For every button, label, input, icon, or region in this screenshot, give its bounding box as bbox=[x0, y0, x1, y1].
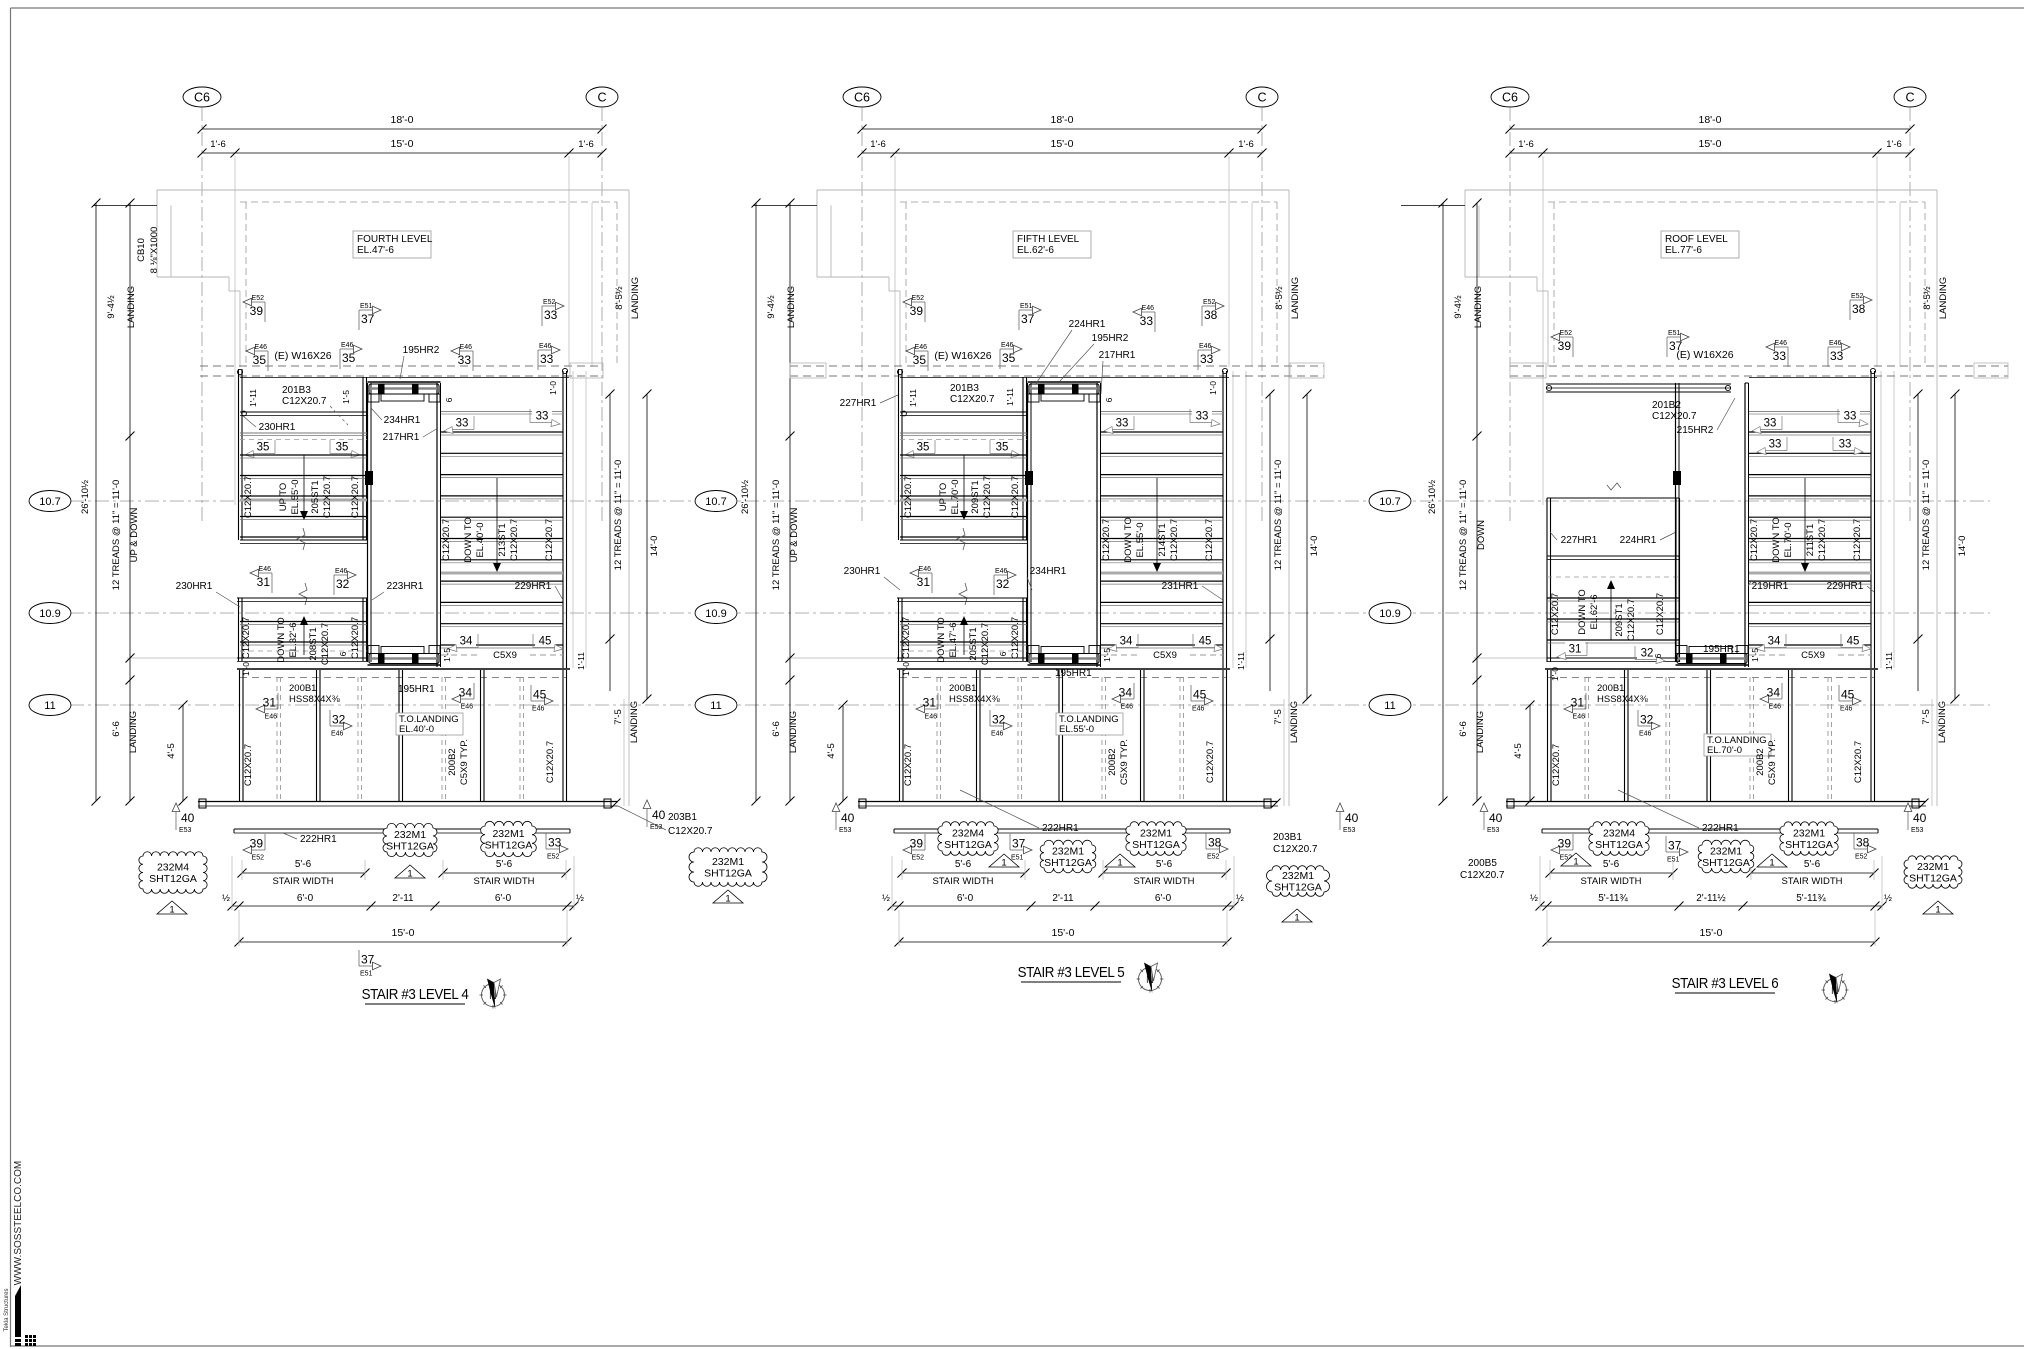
svg-text:C12X20.7: C12X20.7 bbox=[1626, 599, 1637, 641]
svg-text:7'-5: 7'-5 bbox=[1921, 709, 1932, 725]
svg-text:LANDING: LANDING bbox=[126, 286, 137, 328]
svg-text:11: 11 bbox=[44, 700, 55, 712]
svg-text:12 TREADS @ 11" = 11'-0: 12 TREADS @ 11" = 11'-0 bbox=[111, 480, 122, 591]
svg-text:12 TREADS @ 11" = 11'-0: 12 TREADS @ 11" = 11'-0 bbox=[771, 480, 782, 591]
svg-text:E52: E52 bbox=[252, 855, 265, 862]
svg-text:14'-0: 14'-0 bbox=[1957, 536, 1968, 557]
svg-text:DOWN TO: DOWN TO bbox=[1577, 589, 1588, 635]
svg-text:26'-10½: 26'-10½ bbox=[740, 480, 751, 514]
svg-text:6'-6: 6'-6 bbox=[771, 721, 782, 737]
svg-text:E46: E46 bbox=[1142, 305, 1155, 312]
svg-text:E52: E52 bbox=[912, 855, 925, 862]
svg-text:EL.40'-0: EL.40'-0 bbox=[399, 724, 434, 735]
svg-text:6: 6 bbox=[1104, 397, 1114, 402]
svg-text:1'-6: 1'-6 bbox=[1886, 139, 1902, 150]
svg-text:34: 34 bbox=[1768, 636, 1781, 648]
svg-text:34: 34 bbox=[459, 686, 473, 700]
svg-text:SHT12GA: SHT12GA bbox=[149, 873, 197, 885]
svg-text:DOWN TO: DOWN TO bbox=[1771, 517, 1782, 563]
svg-text:203B1: 203B1 bbox=[1273, 832, 1302, 843]
svg-text:E46: E46 bbox=[1199, 343, 1212, 350]
svg-text:DOWN TO: DOWN TO bbox=[936, 617, 947, 663]
svg-text:205ST1: 205ST1 bbox=[968, 627, 979, 660]
svg-text:E46: E46 bbox=[1829, 340, 1842, 347]
svg-text:SHT12GA: SHT12GA bbox=[1909, 872, 1957, 884]
svg-text:232M4: 232M4 bbox=[952, 827, 984, 839]
svg-text:C: C bbox=[1257, 91, 1266, 105]
svg-text:E51: E51 bbox=[360, 303, 373, 310]
svg-text:1'-11: 1'-11 bbox=[1005, 388, 1015, 406]
svg-text:E51: E51 bbox=[1020, 303, 1033, 310]
svg-text:E46: E46 bbox=[1001, 342, 1014, 349]
svg-text:SHT12GA: SHT12GA bbox=[386, 840, 434, 852]
svg-text:33: 33 bbox=[548, 836, 562, 850]
svg-text:33: 33 bbox=[540, 352, 554, 366]
svg-text:C12X20.7: C12X20.7 bbox=[544, 519, 555, 561]
svg-text:E46: E46 bbox=[1840, 706, 1853, 713]
svg-text:35: 35 bbox=[917, 442, 930, 454]
svg-text:C12X20.7: C12X20.7 bbox=[980, 623, 991, 665]
svg-text:33: 33 bbox=[458, 353, 472, 367]
svg-text:C12X20.7: C12X20.7 bbox=[982, 476, 993, 518]
svg-text:SHT12GA: SHT12GA bbox=[704, 867, 752, 879]
svg-text:232M4: 232M4 bbox=[1603, 827, 1635, 839]
svg-text:C6: C6 bbox=[194, 91, 210, 105]
svg-text:33: 33 bbox=[536, 411, 549, 423]
svg-text:C12X20.7: C12X20.7 bbox=[1169, 519, 1180, 561]
svg-text:C12X20.7: C12X20.7 bbox=[1817, 519, 1828, 561]
svg-text:213ST1: 213ST1 bbox=[497, 523, 508, 556]
svg-text:UP TO: UP TO bbox=[278, 483, 289, 512]
svg-text:E52: E52 bbox=[1560, 330, 1573, 337]
svg-text:38: 38 bbox=[1204, 308, 1218, 322]
svg-text:UP & DOWN: UP & DOWN bbox=[789, 508, 800, 563]
svg-text:222HR1: 222HR1 bbox=[300, 834, 337, 845]
svg-text:6'-0: 6'-0 bbox=[495, 893, 512, 904]
svg-text:232M1: 232M1 bbox=[1140, 827, 1172, 839]
svg-text:DOWN TO: DOWN TO bbox=[1123, 517, 1134, 563]
svg-text:E46: E46 bbox=[539, 343, 552, 350]
svg-text:1: 1 bbox=[169, 905, 174, 916]
svg-text:201B2: 201B2 bbox=[1652, 400, 1681, 411]
svg-text:C12X20.7: C12X20.7 bbox=[668, 826, 713, 837]
svg-text:C12X20.7: C12X20.7 bbox=[322, 476, 333, 518]
svg-text:33: 33 bbox=[456, 418, 469, 430]
svg-text:32: 32 bbox=[332, 713, 346, 727]
svg-text:E46: E46 bbox=[532, 706, 545, 713]
svg-text:5'-6: 5'-6 bbox=[1156, 859, 1173, 870]
svg-text:1'-6: 1'-6 bbox=[870, 139, 886, 150]
svg-text:C12X20.7: C12X20.7 bbox=[1853, 741, 1864, 783]
svg-text:C12X20.7: C12X20.7 bbox=[282, 396, 327, 407]
svg-text:31: 31 bbox=[263, 696, 277, 710]
svg-text:45: 45 bbox=[1847, 636, 1860, 648]
svg-text:E52: E52 bbox=[912, 295, 925, 302]
svg-text:35: 35 bbox=[257, 442, 270, 454]
svg-text:37: 37 bbox=[1012, 837, 1026, 851]
svg-text:EL.62'-6: EL.62'-6 bbox=[1017, 245, 1054, 256]
svg-text:E46: E46 bbox=[991, 731, 1004, 738]
svg-text:LANDING: LANDING bbox=[1937, 701, 1948, 743]
svg-text:200B2: 200B2 bbox=[447, 748, 458, 775]
svg-text:EL.62'-6: EL.62'-6 bbox=[1589, 594, 1600, 629]
svg-text:C: C bbox=[1905, 91, 1914, 105]
svg-text:195HR1: 195HR1 bbox=[1055, 668, 1092, 679]
svg-text:38: 38 bbox=[1208, 836, 1222, 850]
svg-text:UP & DOWN: UP & DOWN bbox=[129, 508, 140, 563]
svg-text:10.9: 10.9 bbox=[1379, 608, 1400, 620]
svg-text:UP TO: UP TO bbox=[938, 483, 949, 512]
svg-text:E46: E46 bbox=[1775, 340, 1788, 347]
svg-text:26'-10½: 26'-10½ bbox=[1427, 480, 1438, 514]
svg-text:209ST1: 209ST1 bbox=[970, 480, 981, 513]
svg-text:18'-0: 18'-0 bbox=[390, 114, 413, 126]
svg-text:40: 40 bbox=[841, 811, 855, 825]
svg-text:229HR1: 229HR1 bbox=[515, 581, 552, 592]
svg-text:6: 6 bbox=[444, 397, 454, 402]
svg-text:4'-5: 4'-5 bbox=[826, 743, 837, 759]
svg-text:33: 33 bbox=[1764, 418, 1777, 430]
svg-text:45: 45 bbox=[533, 688, 547, 702]
svg-text:11: 11 bbox=[1384, 700, 1395, 712]
svg-text:C5X9 TYP.: C5X9 TYP. bbox=[1767, 739, 1778, 785]
svg-text:EL.32'-6: EL.32'-6 bbox=[288, 622, 299, 657]
svg-text:C5X9 TYP.: C5X9 TYP. bbox=[459, 739, 470, 785]
svg-text:18'-0: 18'-0 bbox=[1698, 114, 1721, 126]
svg-text:211ST1: 211ST1 bbox=[1805, 524, 1816, 557]
svg-text:6: 6 bbox=[1653, 653, 1663, 658]
svg-text:STAIR WIDTH: STAIR WIDTH bbox=[932, 876, 993, 887]
svg-text:9'-4½: 9'-4½ bbox=[106, 295, 117, 319]
svg-text:LANDING: LANDING bbox=[788, 711, 799, 753]
svg-text:SHT12GA: SHT12GA bbox=[1702, 857, 1750, 869]
svg-text:18'-0: 18'-0 bbox=[1050, 114, 1073, 126]
svg-text:6: 6 bbox=[998, 651, 1008, 656]
svg-text:232M1: 232M1 bbox=[1710, 845, 1742, 857]
svg-text:1: 1 bbox=[1117, 858, 1122, 869]
svg-text:LANDING: LANDING bbox=[630, 277, 641, 319]
svg-text:34: 34 bbox=[1120, 636, 1133, 648]
svg-text:37: 37 bbox=[361, 312, 375, 326]
svg-text:FOURTH LEVEL: FOURTH LEVEL bbox=[357, 234, 433, 245]
svg-text:E51: E51 bbox=[1011, 855, 1024, 862]
svg-text:E46: E46 bbox=[1769, 704, 1782, 711]
svg-text:C6: C6 bbox=[854, 91, 870, 105]
svg-text:C12X20.7: C12X20.7 bbox=[1010, 476, 1021, 518]
svg-text:217HR1: 217HR1 bbox=[1099, 350, 1136, 361]
svg-text:5'-6: 5'-6 bbox=[1804, 859, 1821, 870]
svg-text:1'-11: 1'-11 bbox=[248, 389, 258, 407]
svg-text:EL.47'-6: EL.47'-6 bbox=[357, 245, 394, 256]
svg-text:33: 33 bbox=[1839, 439, 1852, 451]
svg-text:39: 39 bbox=[910, 837, 924, 851]
svg-text:EL.47'-6: EL.47'-6 bbox=[948, 622, 959, 657]
svg-text:C12X20.7: C12X20.7 bbox=[1655, 593, 1666, 635]
svg-text:32: 32 bbox=[336, 577, 350, 591]
svg-text:SHT12GA: SHT12GA bbox=[1132, 839, 1180, 851]
svg-text:LANDING: LANDING bbox=[1475, 711, 1486, 753]
svg-text:14'-0: 14'-0 bbox=[649, 536, 660, 557]
svg-text:E46: E46 bbox=[1121, 704, 1134, 711]
svg-text:1'-11: 1'-11 bbox=[1236, 652, 1246, 670]
svg-text:232M4: 232M4 bbox=[157, 861, 189, 873]
svg-text:1: 1 bbox=[1001, 858, 1006, 869]
svg-text:C12X20.7: C12X20.7 bbox=[350, 476, 361, 518]
svg-text:1: 1 bbox=[407, 869, 412, 880]
svg-text:33: 33 bbox=[1116, 418, 1129, 430]
svg-text:C12X20.7: C12X20.7 bbox=[243, 744, 254, 786]
svg-text:200B1: 200B1 bbox=[949, 683, 976, 694]
svg-text:C5X9: C5X9 bbox=[1801, 650, 1825, 661]
svg-text:40: 40 bbox=[652, 808, 666, 822]
svg-text:LANDING: LANDING bbox=[1290, 277, 1301, 319]
svg-text:2'-11½: 2'-11½ bbox=[1696, 893, 1726, 904]
svg-text:HSS8X4X⅜: HSS8X4X⅜ bbox=[1597, 694, 1648, 705]
svg-text:8 ⅛"X1000: 8 ⅛"X1000 bbox=[149, 227, 160, 274]
svg-text:E46: E46 bbox=[1573, 714, 1586, 721]
svg-text:C12X20.7: C12X20.7 bbox=[241, 617, 252, 659]
svg-text:C12X20.7: C12X20.7 bbox=[903, 476, 914, 518]
svg-text:26'-10½: 26'-10½ bbox=[80, 480, 91, 514]
svg-text:10.7: 10.7 bbox=[705, 496, 726, 508]
svg-text:ROOF LEVEL: ROOF LEVEL bbox=[1665, 234, 1728, 245]
svg-text:LANDING: LANDING bbox=[1938, 277, 1949, 319]
svg-text:15'-0: 15'-0 bbox=[391, 927, 414, 939]
svg-text:232M1: 232M1 bbox=[394, 829, 426, 841]
svg-text:232M1: 232M1 bbox=[1052, 845, 1084, 857]
svg-text:39: 39 bbox=[1558, 837, 1572, 851]
svg-text:39: 39 bbox=[1558, 339, 1572, 353]
svg-text:33: 33 bbox=[1200, 352, 1214, 366]
svg-text:215HR2: 215HR2 bbox=[1677, 425, 1714, 436]
svg-text:37: 37 bbox=[1668, 839, 1682, 853]
svg-text:1'-6: 1'-6 bbox=[1518, 139, 1534, 150]
svg-text:222HR1: 222HR1 bbox=[1702, 823, 1739, 834]
svg-text:39: 39 bbox=[910, 304, 924, 318]
svg-text:201B3: 201B3 bbox=[282, 385, 311, 396]
svg-text:E51: E51 bbox=[1668, 330, 1681, 337]
svg-text:C6: C6 bbox=[1502, 91, 1518, 105]
svg-text:223HR1: 223HR1 bbox=[387, 581, 424, 592]
svg-text:5'-6: 5'-6 bbox=[295, 859, 312, 870]
svg-text:(E) W16X26: (E) W16X26 bbox=[274, 350, 331, 362]
svg-text:½: ½ bbox=[1884, 893, 1892, 904]
svg-text:STAIR WIDTH: STAIR WIDTH bbox=[272, 876, 333, 887]
svg-text:(E) W16X26: (E) W16X26 bbox=[1676, 349, 1733, 361]
svg-text:C12X20.7: C12X20.7 bbox=[901, 617, 912, 659]
svg-text:15'-0: 15'-0 bbox=[390, 138, 413, 150]
svg-text:E46: E46 bbox=[460, 344, 473, 351]
svg-text:45: 45 bbox=[539, 636, 552, 648]
svg-text:1'-11: 1'-11 bbox=[576, 652, 586, 670]
svg-text:WWW.SOSSTEELCO.COM: WWW.SOSSTEELCO.COM bbox=[13, 1161, 24, 1285]
svg-text:8'-5½: 8'-5½ bbox=[614, 286, 625, 310]
svg-text:4'-5: 4'-5 bbox=[1513, 743, 1524, 759]
svg-text:1'-5: 1'-5 bbox=[1750, 648, 1760, 662]
svg-text:35: 35 bbox=[342, 351, 356, 365]
svg-text:STAIR WIDTH: STAIR WIDTH bbox=[1781, 876, 1842, 887]
svg-text:1'-5: 1'-5 bbox=[1102, 648, 1112, 662]
svg-text:E46: E46 bbox=[335, 568, 348, 575]
svg-text:34: 34 bbox=[1119, 686, 1133, 700]
svg-text:40: 40 bbox=[181, 811, 195, 825]
svg-text:6'-6: 6'-6 bbox=[111, 721, 122, 737]
svg-text:217HR1: 217HR1 bbox=[383, 432, 420, 443]
svg-text:9'-4½: 9'-4½ bbox=[766, 295, 777, 319]
svg-text:195HR2: 195HR2 bbox=[1092, 333, 1129, 344]
svg-text:12 TREADS @ 11" = 11'-0: 12 TREADS @ 11" = 11'-0 bbox=[1273, 460, 1284, 571]
svg-text:E53: E53 bbox=[1487, 827, 1500, 834]
svg-text:EL.70'-0: EL.70'-0 bbox=[1707, 745, 1742, 756]
svg-text:232M1: 232M1 bbox=[492, 828, 524, 840]
svg-text:EL.40'-0: EL.40'-0 bbox=[475, 522, 486, 557]
svg-text:C12X20.7: C12X20.7 bbox=[1205, 741, 1216, 783]
svg-text:E51: E51 bbox=[1667, 857, 1680, 864]
svg-text:200B1: 200B1 bbox=[1597, 683, 1624, 694]
svg-text:4'-5: 4'-5 bbox=[166, 743, 177, 759]
svg-text:195HR1: 195HR1 bbox=[1703, 644, 1740, 655]
svg-text:35: 35 bbox=[1002, 351, 1016, 365]
svg-text:HSS8X4X⅜: HSS8X4X⅜ bbox=[949, 694, 1000, 705]
svg-text:32: 32 bbox=[996, 577, 1010, 591]
svg-text:224HR1: 224HR1 bbox=[1069, 319, 1106, 330]
svg-text:40: 40 bbox=[1913, 811, 1927, 825]
svg-text:C12X20.7: C12X20.7 bbox=[1551, 744, 1562, 786]
svg-text:E52: E52 bbox=[252, 295, 265, 302]
svg-text:6'-0: 6'-0 bbox=[1155, 893, 1172, 904]
svg-text:6: 6 bbox=[338, 651, 348, 656]
svg-text:C12X20.7: C12X20.7 bbox=[441, 519, 452, 561]
svg-text:14'-0: 14'-0 bbox=[1309, 536, 1320, 557]
svg-text:200B1: 200B1 bbox=[289, 683, 316, 694]
svg-text:231HR1: 231HR1 bbox=[1162, 581, 1199, 592]
svg-text:C12X20.7: C12X20.7 bbox=[320, 623, 331, 665]
svg-text:1'-6: 1'-6 bbox=[210, 139, 226, 150]
svg-text:31: 31 bbox=[1569, 644, 1582, 656]
svg-text:5'-6: 5'-6 bbox=[496, 859, 513, 870]
svg-text:34: 34 bbox=[460, 636, 473, 648]
svg-text:5'-6: 5'-6 bbox=[955, 859, 972, 870]
svg-text:40: 40 bbox=[1489, 811, 1503, 825]
svg-text:10.9: 10.9 bbox=[39, 608, 60, 620]
svg-text:234HR1: 234HR1 bbox=[1030, 566, 1067, 577]
svg-text:LANDING: LANDING bbox=[629, 701, 640, 743]
svg-text:EL.70'-0: EL.70'-0 bbox=[950, 479, 961, 514]
svg-text:33: 33 bbox=[1769, 439, 1782, 451]
svg-text:219HR1: 219HR1 bbox=[1752, 581, 1789, 592]
svg-text:33: 33 bbox=[1844, 411, 1857, 423]
svg-text:5'-11¾: 5'-11¾ bbox=[1598, 893, 1628, 904]
svg-text:8'-5½: 8'-5½ bbox=[1922, 286, 1933, 310]
svg-text:31: 31 bbox=[923, 696, 937, 710]
svg-text:232M1: 232M1 bbox=[1282, 870, 1314, 882]
svg-text:39: 39 bbox=[250, 304, 264, 318]
svg-text:C12X20.7: C12X20.7 bbox=[1101, 519, 1112, 561]
svg-text:EL.55'-0: EL.55'-0 bbox=[290, 479, 301, 514]
svg-text:201B3: 201B3 bbox=[950, 383, 979, 394]
svg-text:232M1: 232M1 bbox=[1793, 827, 1825, 839]
svg-text:232M1: 232M1 bbox=[712, 856, 744, 868]
svg-text:33: 33 bbox=[544, 308, 558, 322]
svg-text:32: 32 bbox=[992, 713, 1006, 727]
svg-text:EL.70'-0: EL.70'-0 bbox=[1783, 522, 1794, 557]
svg-text:12 TREADS @ 11" = 11'-0: 12 TREADS @ 11" = 11'-0 bbox=[613, 460, 624, 571]
svg-text:½: ½ bbox=[222, 893, 230, 904]
svg-text:12 TREADS @ 11" = 11'-0: 12 TREADS @ 11" = 11'-0 bbox=[1921, 460, 1932, 571]
svg-text:45: 45 bbox=[1841, 688, 1855, 702]
svg-text:SHT12GA: SHT12GA bbox=[944, 839, 992, 851]
svg-text:½: ½ bbox=[576, 893, 584, 904]
svg-text:½: ½ bbox=[1236, 893, 1244, 904]
svg-text:37: 37 bbox=[361, 953, 375, 967]
svg-text:8'-5½: 8'-5½ bbox=[1274, 286, 1285, 310]
svg-text:7'-5: 7'-5 bbox=[1273, 709, 1284, 725]
svg-text:40: 40 bbox=[1345, 811, 1359, 825]
svg-text:SHT12GA: SHT12GA bbox=[1785, 839, 1833, 851]
svg-text:E51: E51 bbox=[360, 971, 373, 978]
svg-text:209ST1: 209ST1 bbox=[1614, 603, 1625, 636]
svg-text:E52: E52 bbox=[1851, 293, 1864, 300]
svg-text:205ST1: 205ST1 bbox=[310, 480, 321, 513]
svg-text:227HR1: 227HR1 bbox=[840, 398, 877, 409]
svg-text:E52: E52 bbox=[1203, 299, 1216, 306]
svg-text:STAIR #3 LEVEL 4: STAIR #3 LEVEL 4 bbox=[362, 985, 469, 1002]
svg-text:C: C bbox=[597, 91, 606, 105]
svg-text:33: 33 bbox=[1196, 411, 1209, 423]
svg-text:214ST1: 214ST1 bbox=[1157, 523, 1168, 556]
svg-text:1'-5: 1'-5 bbox=[442, 648, 452, 662]
svg-text:E53: E53 bbox=[1911, 827, 1924, 834]
svg-text:C12X20.7: C12X20.7 bbox=[1852, 519, 1863, 561]
svg-text:6'-0: 6'-0 bbox=[297, 893, 314, 904]
svg-text:LANDING: LANDING bbox=[1289, 701, 1300, 743]
svg-text:15'-0: 15'-0 bbox=[1699, 927, 1722, 939]
svg-text:C12X20.7: C12X20.7 bbox=[1273, 844, 1318, 855]
svg-text:224HR1: 224HR1 bbox=[1620, 535, 1657, 546]
svg-text:C5X9: C5X9 bbox=[493, 650, 517, 661]
svg-text:1: 1 bbox=[1573, 857, 1578, 868]
svg-text:32: 32 bbox=[1640, 713, 1654, 727]
svg-text:SHT12GA: SHT12GA bbox=[1274, 881, 1322, 893]
svg-text:195HR1: 195HR1 bbox=[398, 684, 435, 695]
svg-text:DOWN: DOWN bbox=[1476, 520, 1487, 550]
svg-text:STAIR #3 LEVEL 5: STAIR #3 LEVEL 5 bbox=[1018, 963, 1125, 980]
svg-text:E46: E46 bbox=[331, 731, 344, 738]
svg-text:232M1: 232M1 bbox=[1917, 861, 1949, 873]
svg-text:222HR1: 222HR1 bbox=[1042, 823, 1079, 834]
svg-text:1'-6: 1'-6 bbox=[1238, 139, 1254, 150]
svg-text:6'-6: 6'-6 bbox=[1458, 721, 1469, 737]
svg-text:E46: E46 bbox=[995, 568, 1008, 575]
svg-text:33: 33 bbox=[1830, 349, 1844, 363]
svg-text:E46: E46 bbox=[1639, 731, 1652, 738]
svg-text:C12X20.7: C12X20.7 bbox=[1460, 870, 1505, 881]
svg-text:E46: E46 bbox=[265, 714, 278, 721]
svg-text:E52: E52 bbox=[1207, 854, 1220, 861]
svg-text:STAIR WIDTH: STAIR WIDTH bbox=[1580, 876, 1641, 887]
svg-text:15'-0: 15'-0 bbox=[1050, 138, 1073, 150]
svg-text:SHT12GA: SHT12GA bbox=[1595, 839, 1643, 851]
svg-text:E52: E52 bbox=[547, 854, 560, 861]
svg-text:E46: E46 bbox=[1192, 706, 1205, 713]
svg-text:1'-0: 1'-0 bbox=[1208, 381, 1218, 395]
svg-text:1'-5: 1'-5 bbox=[341, 390, 351, 404]
svg-text:C12X20.7: C12X20.7 bbox=[1550, 593, 1561, 635]
svg-text:E53: E53 bbox=[839, 827, 852, 834]
svg-text:35: 35 bbox=[336, 442, 349, 454]
svg-text:1'-11: 1'-11 bbox=[908, 389, 918, 407]
svg-text:229HR1: 229HR1 bbox=[1827, 581, 1864, 592]
